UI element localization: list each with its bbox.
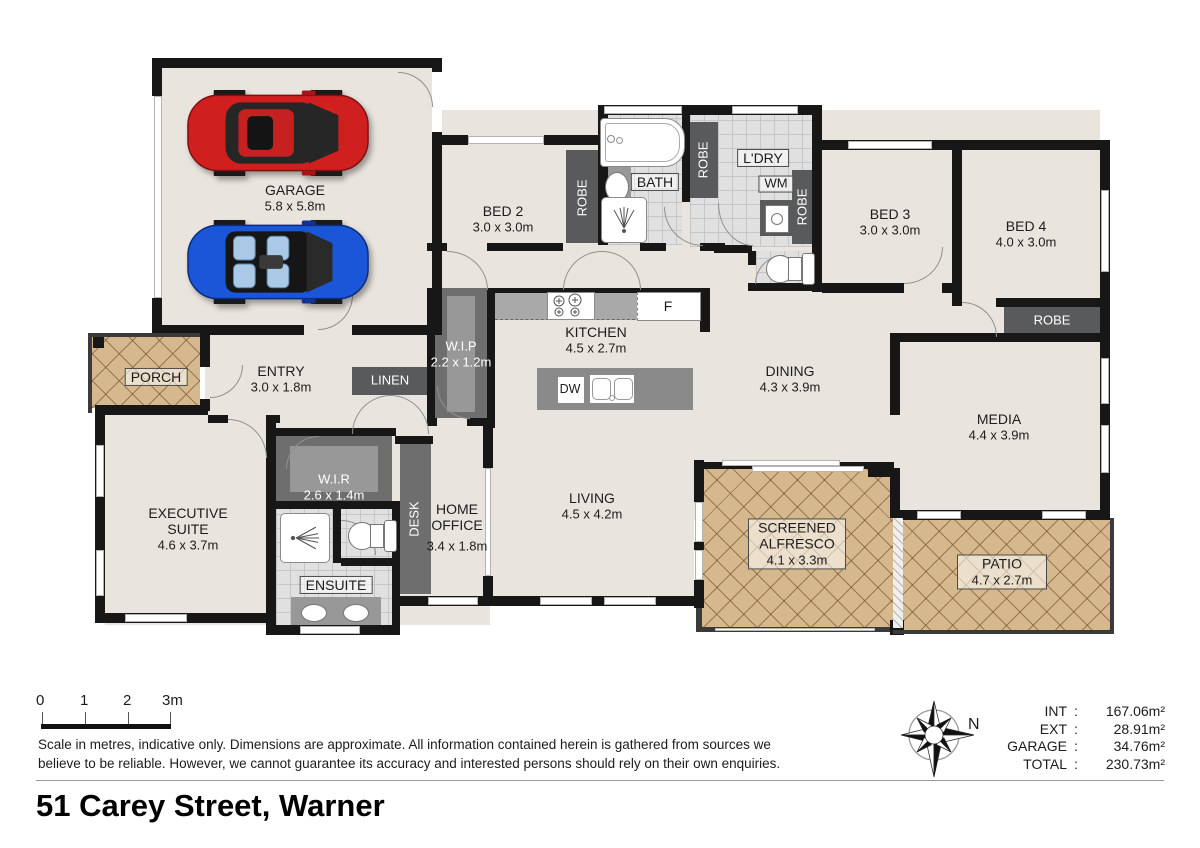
window: [468, 136, 544, 144]
area-sep: :: [1069, 756, 1083, 774]
dining-dims: 4.3 x 3.9m: [760, 381, 821, 396]
area-label: GARAGE: [990, 738, 1067, 756]
window: [1101, 425, 1109, 473]
vanity-basin: [301, 604, 327, 622]
entry-dims: 3.0 x 1.8m: [251, 381, 312, 396]
wall: [88, 333, 205, 337]
garage-dims: 5.8 x 5.8m: [265, 200, 326, 215]
disclaimer-line1: Scale in metres, indicative only. Dimens…: [38, 735, 878, 754]
alfresco-name: SCREENED ALFRESCO: [758, 519, 836, 551]
alfresco-label: SCREENED ALFRESCO 4.1 x 3.3m: [748, 518, 846, 569]
disclaimer-line2: believe to be reliable. However, we cann…: [38, 754, 878, 773]
wall: [200, 333, 210, 367]
wall: [483, 420, 493, 468]
bed4-label: BED 4: [1006, 218, 1046, 234]
patio-dims: 4.7 x 2.7m: [972, 573, 1033, 588]
wall: [88, 333, 92, 413]
window: [1042, 511, 1086, 519]
wc-toilet: [766, 253, 814, 283]
screen-window: [715, 628, 875, 631]
wall: [544, 135, 602, 145]
wall: [395, 436, 433, 444]
wall: [208, 415, 228, 423]
window: [300, 626, 360, 634]
area-sep: :: [1069, 738, 1083, 756]
scale-tick-3: 3m: [162, 692, 183, 709]
wall: [694, 542, 704, 550]
media-dims: 4.4 x 3.9m: [969, 429, 1030, 444]
kitchen-dims: 4.5 x 2.7m: [566, 342, 627, 357]
window: [125, 614, 187, 622]
wall: [962, 140, 1110, 150]
kitchen-label: KITCHEN: [565, 324, 626, 340]
sliding-door: [752, 466, 864, 472]
wall: [152, 58, 442, 68]
wall: [996, 298, 1100, 307]
wall: [427, 243, 447, 251]
hall-robe-label: ROBE: [697, 142, 712, 179]
area-sep: :: [1069, 703, 1083, 721]
ensuite-label: ENSUITE: [300, 576, 373, 594]
red-car: [184, 90, 372, 176]
window: [604, 597, 656, 605]
laundry-label: L'DRY: [737, 149, 789, 167]
home-office-dims: 3.4 x 1.8m: [427, 540, 488, 555]
bed2-label: BED 2: [483, 203, 523, 219]
pantry-dims: 2.2 x 1.2m: [431, 356, 492, 371]
cooktop: [547, 292, 595, 320]
alfresco-dims: 4.1 x 3.3m: [767, 553, 828, 568]
wall: [694, 580, 704, 608]
wall: [427, 418, 437, 426]
laundry-tub: [765, 205, 789, 233]
wall: [341, 558, 396, 566]
window: [732, 106, 798, 114]
garage-door: [154, 96, 162, 298]
area-label: INT: [990, 703, 1067, 721]
wall: [890, 333, 900, 415]
executive-suite-label: EXECUTIVE SUITE: [133, 505, 243, 537]
wall: [700, 288, 710, 332]
wall: [93, 337, 104, 348]
floorplan-page: GARAGE 5.8 x 5.8m BED 2 3.0 x 3.0m BED 3…: [0, 0, 1200, 848]
patio-name: PATIO: [982, 555, 1022, 571]
wall: [95, 405, 208, 415]
area-summary: INT : 167.06m² EXT : 28.91m² GARAGE : 34…: [990, 703, 1165, 773]
window: [695, 550, 703, 580]
disclaimer: Scale in metres, indicative only. Dimens…: [38, 735, 878, 773]
compass-north-label: N: [968, 716, 980, 734]
window: [96, 550, 104, 596]
window: [1101, 358, 1109, 404]
scale-tick-0: 0: [36, 692, 44, 709]
page-title: 51 Carey Street, Warner: [36, 788, 385, 824]
entry-label: ENTRY: [257, 363, 304, 379]
window: [96, 445, 104, 497]
area-value: 167.06m²: [1085, 703, 1165, 721]
wall: [640, 243, 666, 251]
wall: [152, 58, 162, 96]
bed4-dims: 4.0 x 3.0m: [996, 236, 1057, 251]
wall: [748, 251, 756, 265]
vanity-basin: [343, 604, 369, 622]
wir-label: W.I.R: [318, 473, 350, 488]
footer-divider: [36, 780, 1164, 781]
shower: [601, 197, 647, 243]
bed3-dims: 3.0 x 3.0m: [860, 224, 921, 239]
scale-bar: [41, 724, 171, 729]
living-label: LIVING: [569, 490, 615, 506]
wall: [822, 283, 904, 293]
window: [1101, 190, 1109, 272]
area-label: TOTAL: [990, 756, 1067, 774]
porch-label: PORCH: [125, 368, 188, 386]
window: [695, 502, 703, 542]
fridge-label: F: [664, 298, 673, 314]
area-label: EXT: [990, 721, 1067, 739]
wall: [333, 509, 341, 563]
window: [604, 106, 682, 114]
ensuite-shower: [280, 513, 330, 563]
screen-wall: [1110, 518, 1114, 634]
wir-dims: 2.6 x 1.4m: [304, 489, 365, 504]
wall: [700, 243, 725, 251]
area-value: 28.91m²: [1085, 721, 1165, 739]
home-office-label: HOME OFFICE: [425, 501, 489, 533]
bath-label: BATH: [631, 173, 679, 191]
linen-label: LINEN: [371, 374, 409, 389]
compass-icon: [890, 691, 978, 779]
wall: [266, 415, 276, 635]
wall: [487, 243, 563, 251]
scale-tick-2: 2: [123, 692, 131, 709]
alfresco-patio-screen: [893, 518, 903, 628]
wall: [489, 596, 701, 606]
media-label: MEDIA: [977, 411, 1021, 427]
area-value: 34.76m²: [1085, 738, 1165, 756]
bed2-robe-label: ROBE: [576, 180, 591, 217]
scale-tick-1: 1: [80, 692, 88, 709]
dining-label: DINING: [766, 363, 815, 379]
bed3-label: BED 3: [870, 206, 910, 222]
desk-label: DESK: [408, 501, 423, 536]
pantry-label: W.I.P: [445, 340, 476, 355]
kitchen-sink: [590, 375, 634, 403]
wall: [432, 58, 442, 72]
ensuite-toilet: [348, 520, 396, 550]
bed2-dims: 3.0 x 3.0m: [473, 221, 534, 236]
patio-label: PATIO 4.7 x 2.7m: [957, 554, 1047, 589]
area-value: 230.73m²: [1085, 756, 1165, 774]
garage-label: GARAGE: [265, 182, 325, 198]
window: [917, 511, 961, 519]
window: [428, 597, 478, 605]
bed4-robe-label: ROBE: [1034, 314, 1071, 329]
window: [848, 141, 932, 149]
laundry-robe-label: ROBE: [796, 189, 811, 226]
bathtub: [600, 118, 685, 167]
living-dims: 4.5 x 4.2m: [562, 508, 623, 523]
wall: [942, 283, 962, 293]
blue-car: [184, 220, 372, 304]
screen-wall: [893, 630, 1114, 634]
executive-suite-dims: 4.6 x 3.7m: [158, 539, 219, 554]
window: [540, 597, 592, 605]
dishwasher-label: DW: [560, 382, 581, 396]
wall: [442, 135, 468, 145]
wall: [893, 333, 1103, 342]
wm-label: WM: [758, 176, 793, 193]
area-sep: :: [1069, 721, 1083, 739]
